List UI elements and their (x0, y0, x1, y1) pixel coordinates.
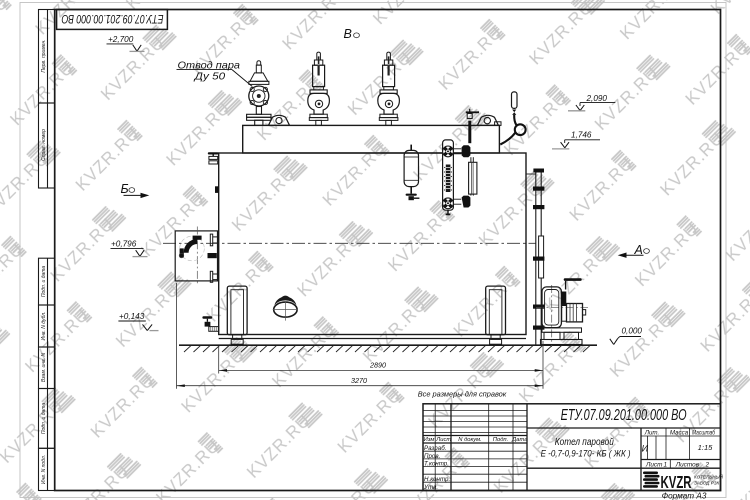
svg-text:2890: 2890 (369, 361, 386, 370)
svg-text:Н.контр.: Н.контр. (424, 476, 450, 483)
svg-text:N докум.: N докум. (458, 437, 481, 443)
svg-text:3270: 3270 (351, 376, 367, 385)
svg-text:1: 1 (664, 462, 668, 469)
svg-text:Лист: Лист (435, 437, 451, 443)
svg-text:Пров.: Пров. (424, 453, 440, 460)
svg-text:КОТЕЛЬНЫЙ: КОТЕЛЬНЫЙ (694, 473, 724, 480)
svg-text:1:15: 1:15 (698, 443, 714, 452)
svg-text:Разраб.: Разраб. (424, 445, 446, 452)
svg-text:+2,700: +2,700 (108, 35, 134, 44)
svg-text:Инв. N дубл.: Инв. N дубл. (41, 312, 47, 341)
svg-text:Б: Б (121, 182, 129, 196)
svg-text:Листов: Листов (675, 462, 700, 469)
svg-text:0,000: 0,000 (622, 326, 643, 335)
svg-text:Ду 50: Ду 50 (194, 71, 226, 83)
svg-text:2,090: 2,090 (586, 94, 608, 103)
svg-text:Дата: Дата (511, 437, 528, 443)
svg-text:ЕТУ.07.09.201.00.000 ВО: ЕТУ.07.09.201.00.000 ВО (61, 12, 163, 26)
svg-text:Е -0,7-0,9-170- КБ ( ЖК ): Е -0,7-0,9-170- КБ ( ЖК ) (541, 448, 631, 458)
svg-text:+0,796: +0,796 (111, 240, 137, 249)
svg-text:Формат А3: Формат А3 (662, 491, 707, 500)
svg-text:Перв. примен.: Перв. примен. (41, 39, 47, 72)
svg-text:1,746: 1,746 (571, 131, 592, 140)
svg-text:KVZR: KVZR (661, 472, 692, 492)
svg-text:Масса: Масса (670, 430, 689, 437)
svg-text:Утв.: Утв. (423, 484, 438, 491)
svg-text:Изм: Изм (424, 437, 435, 443)
svg-text:В: В (344, 27, 352, 41)
svg-text:Лист: Лист (645, 462, 663, 469)
svg-text:ЗАВОД РЗК: ЗАВОД РЗК (694, 481, 720, 486)
svg-text:Масштаб: Масштаб (692, 430, 715, 437)
svg-text:И: И (642, 444, 649, 454)
svg-text:ЕТУ.07.09.201.00.000 ВО: ЕТУ.07.09.201.00.000 ВО (561, 407, 687, 424)
svg-text:Инв. N подл.: Инв. N подл. (41, 455, 47, 484)
svg-text:Т.контр.: Т.контр. (424, 460, 449, 467)
svg-text:Подп. и дата: Подп. и дата (41, 266, 47, 298)
svg-text:+0,143: +0,143 (119, 312, 145, 321)
svg-text:Лит.: Лит. (644, 430, 660, 437)
svg-text:Взам. инв. N: Взам. инв. N (41, 353, 47, 383)
svg-text:Котел паровой: Котел паровой (555, 437, 614, 448)
svg-text:Все размеры для справок: Все размеры для справок (418, 389, 507, 398)
svg-text:Подп.: Подп. (493, 437, 508, 443)
svg-text:Подп. и дата: Подп. и дата (41, 403, 47, 435)
svg-text:Справ. номер: Справ. номер (41, 129, 47, 161)
svg-text:2: 2 (705, 462, 710, 469)
